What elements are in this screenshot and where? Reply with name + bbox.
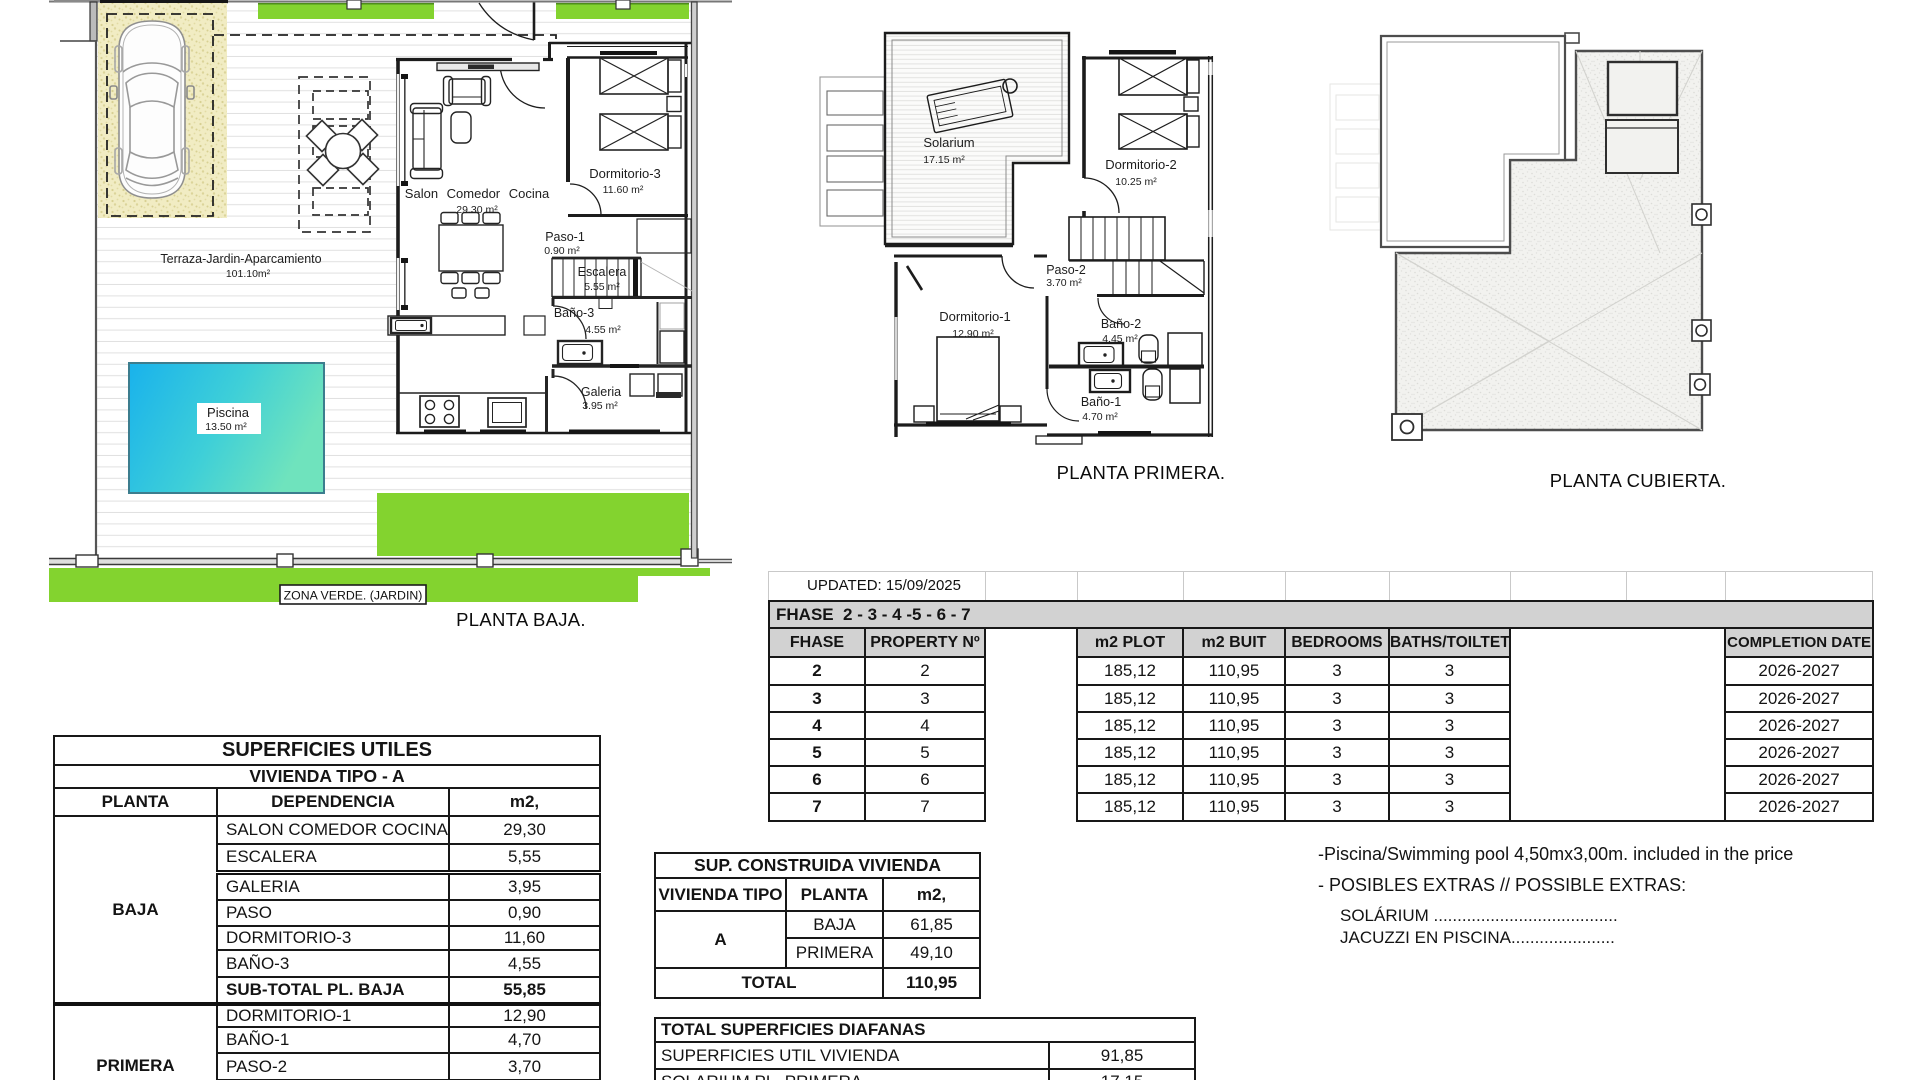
svg-text:4.55 m²: 4.55 m²: [585, 324, 621, 336]
svg-text:3.95 m²: 3.95 m²: [582, 400, 618, 412]
svg-text:Dormitorio-1: Dormitorio-1: [939, 309, 1011, 324]
svg-text:12.90 m²: 12.90 m²: [952, 328, 994, 340]
svg-text:ZONA VERDE. (JARDIN): ZONA VERDE. (JARDIN): [284, 589, 423, 603]
svg-text:13.50 m²: 13.50 m²: [205, 421, 247, 433]
svg-text:Baño-1: Baño-1: [1081, 395, 1121, 409]
svg-text:Salon Comedor Cocina: Salon Comedor Cocina: [405, 186, 550, 201]
svg-text:Piscina: Piscina: [207, 405, 250, 420]
svg-text:29.30 m²: 29.30 m²: [456, 204, 498, 216]
svg-text:10.25 m²: 10.25 m²: [1115, 176, 1157, 188]
svg-text:11.60 m²: 11.60 m²: [603, 184, 644, 196]
svg-text:Terraza-Jardin-Aparcamiento: Terraza-Jardin-Aparcamiento: [160, 252, 321, 266]
svg-text:Galeria: Galeria: [581, 385, 621, 399]
svg-text:4.70 m²: 4.70 m²: [1082, 411, 1118, 423]
svg-text:17.15 m²: 17.15 m²: [923, 154, 965, 166]
svg-text:101.10m²: 101.10m²: [226, 268, 271, 280]
svg-text:Baño-2: Baño-2: [1101, 317, 1141, 331]
svg-text:PLANTA BAJA.: PLANTA BAJA.: [456, 609, 586, 630]
svg-text:5.55 m²: 5.55 m²: [584, 281, 620, 293]
svg-text:Paso-1: Paso-1: [545, 230, 585, 244]
svg-text:Dormitorio-3: Dormitorio-3: [589, 166, 661, 181]
svg-text:4.45 m²: 4.45 m²: [1102, 333, 1138, 345]
svg-text:PLANTA CUBIERTA.: PLANTA CUBIERTA.: [1550, 470, 1727, 491]
svg-text:Solarium: Solarium: [923, 135, 974, 150]
svg-text:Paso-2: Paso-2: [1046, 263, 1086, 277]
svg-text:PLANTA PRIMERA.: PLANTA PRIMERA.: [1057, 462, 1226, 483]
svg-text:3.70 m²: 3.70 m²: [1046, 277, 1082, 289]
svg-text:Escalera: Escalera: [578, 265, 627, 279]
svg-text:Baño-3: Baño-3: [554, 306, 594, 320]
svg-text:0.90 m²: 0.90 m²: [544, 245, 580, 257]
svg-text:Dormitorio-2: Dormitorio-2: [1105, 157, 1177, 172]
